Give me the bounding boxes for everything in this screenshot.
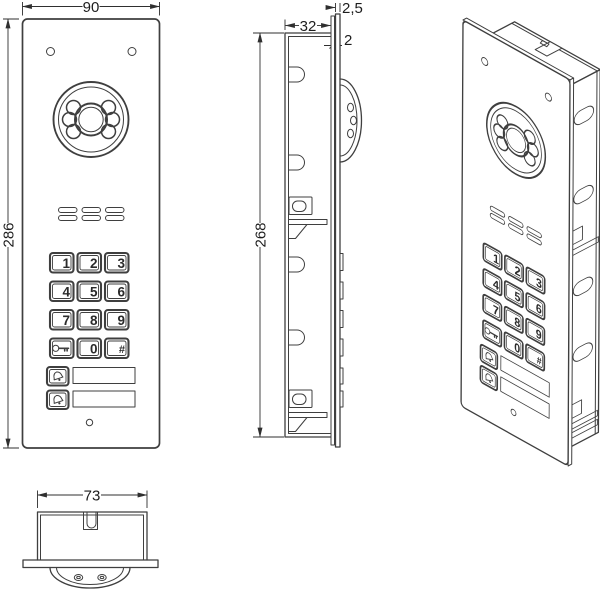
dim-label-front-width: 90 — [83, 0, 100, 16]
side-view: 268 32 2,5 2 — [253, 0, 363, 447]
svg-text:7: 7 — [62, 313, 70, 328]
front-panel-outline — [461, 20, 570, 466]
dim-label-bottom-width: 73 — [84, 488, 101, 505]
svg-text:#: # — [119, 344, 125, 356]
camera-dome-bottom-inner — [57, 568, 124, 585]
led-hole — [348, 103, 354, 111]
led-hole — [351, 116, 357, 124]
technical-drawing-page: 90 286 — [0, 0, 600, 591]
dim-bottom-width: 73 — [38, 488, 148, 508]
camera-dome-inner — [340, 85, 357, 156]
backbox-outer-wall — [285, 33, 331, 437]
dim-box-height: 268 — [253, 33, 284, 437]
mounting-bracket-lower — [289, 390, 328, 432]
bottom-view: 73 — [23, 488, 158, 588]
svg-text:1: 1 — [62, 256, 70, 271]
svg-text:8: 8 — [90, 313, 98, 328]
dome-vent-holes — [74, 575, 106, 581]
cable-entry-slot — [87, 512, 96, 528]
isometric-view: 1 2 3 4 5 6 7 8 9 0 # — [461, 18, 600, 466]
svg-text:5: 5 — [90, 285, 98, 300]
mounting-bracket-upper — [289, 197, 328, 239]
led-hole — [348, 129, 354, 137]
front-view: 90 286 — [1, 0, 160, 448]
backbox-bottom-outline — [38, 512, 148, 560]
iso-front-face: 1 2 3 4 5 6 7 8 9 0 # — [461, 20, 570, 466]
dim-label-panel-thickness: 2,5 — [342, 0, 363, 17]
backbox-frame-profile — [331, 16, 335, 445]
front-panel-profile — [336, 14, 341, 447]
dim-label-box-height: 268 — [253, 222, 270, 247]
mounting-tabs — [289, 67, 305, 345]
svg-text:2: 2 — [90, 256, 98, 271]
dim-label-front-height: 286 — [1, 222, 18, 247]
dim-front-height: 286 — [1, 19, 19, 448]
door-station-dimensional-drawing: 90 286 — [0, 0, 600, 591]
svg-text:6: 6 — [117, 285, 125, 300]
svg-text:4: 4 — [62, 285, 70, 300]
dim-label-frame-thickness: 2 — [344, 32, 352, 49]
panel-edge-bottom — [23, 560, 158, 568]
backbox-bottom-inner — [41, 515, 144, 560]
svg-text:3: 3 — [117, 256, 125, 271]
svg-text:0: 0 — [90, 342, 98, 357]
svg-text:9: 9 — [117, 313, 125, 328]
backbox-inner-wall — [289, 37, 331, 434]
dim-panel-thickness: 2,5 — [327, 0, 363, 17]
dim-front-width: 90 — [23, 0, 160, 16]
